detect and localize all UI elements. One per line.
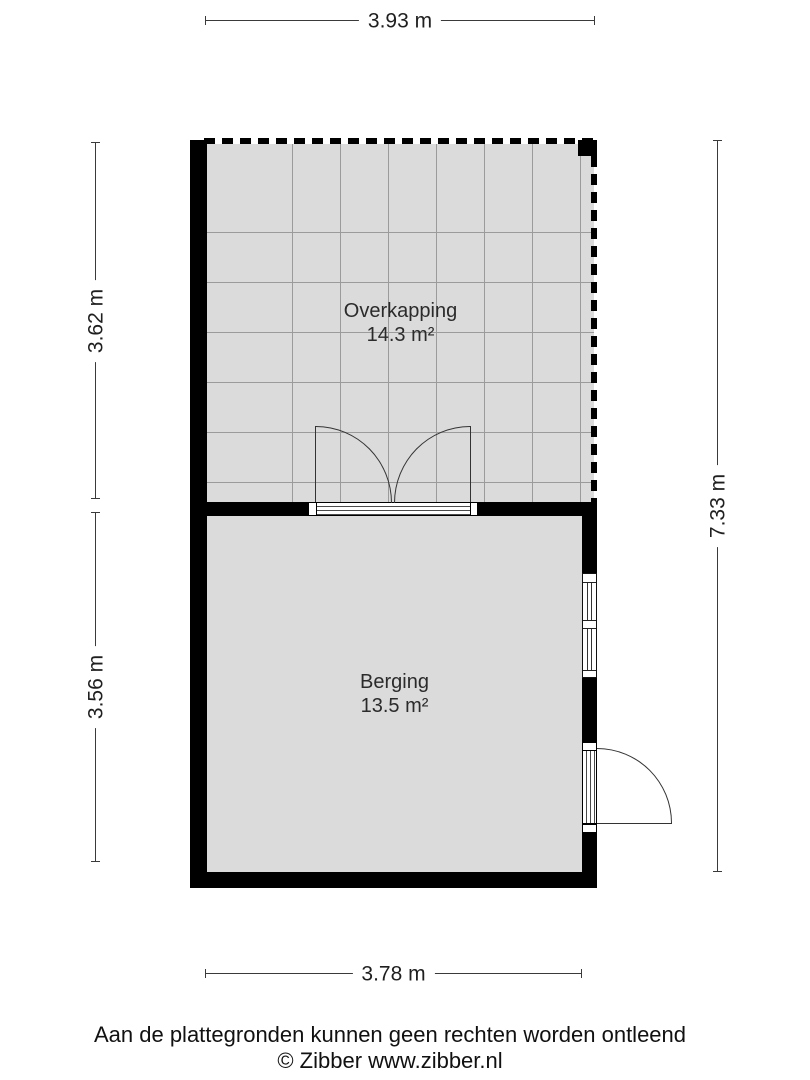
room-berging-label: Berging 13.5 m² — [207, 516, 582, 872]
dimension-top: 3.93 m — [205, 20, 595, 21]
double-door-right-leaf — [470, 426, 471, 502]
dimension-right: 7.33 m — [717, 140, 718, 872]
room-overkapping-name: Overkapping — [344, 300, 457, 322]
window-center-mullion — [583, 620, 596, 629]
dimension-left-upper: 3.62 m — [95, 142, 96, 499]
footer-credit: © Zibber www.zibber.nl — [0, 1048, 780, 1074]
footer: Aan de plattegronden kunnen geen rechten… — [0, 1022, 780, 1074]
window-right-wall — [582, 573, 597, 678]
wall-bottom — [190, 872, 597, 888]
exterior-door-leaf — [597, 823, 672, 824]
room-overkapping-label: Overkapping 14.3 m² — [207, 144, 594, 502]
wall-divider-left — [190, 502, 308, 516]
room-berging-floor: Berging 13.5 m² — [207, 516, 582, 872]
room-overkapping-area: 14.3 m² — [367, 324, 435, 346]
double-door-jamb-right — [470, 502, 478, 516]
double-door-sill — [316, 502, 471, 516]
wall-divider-right — [478, 502, 597, 516]
exterior-door-swing-arc — [597, 748, 672, 823]
window-frame-line — [583, 582, 596, 583]
dimension-right-label: 7.33 m — [706, 465, 729, 547]
wall-right-middle — [582, 678, 597, 742]
dimension-left-lower: 3.56 m — [95, 512, 96, 862]
dimension-bottom-label: 3.78 m — [352, 962, 434, 985]
footer-disclaimer: Aan de plattegronden kunnen geen rechten… — [0, 1022, 780, 1048]
floorplan-canvas: 3.93 m 3.62 m 3.56 m 7.33 m 3.78 m Overk… — [0, 0, 810, 1080]
room-overkapping-floor: Overkapping 14.3 m² — [207, 144, 594, 502]
room-berging-area: 13.5 m² — [361, 695, 429, 717]
dimension-left-upper-label: 3.62 m — [84, 279, 107, 361]
room-berging-name: Berging — [360, 671, 429, 693]
exterior-door-jamb-bottom — [582, 824, 597, 833]
wall-right-lower — [582, 832, 597, 872]
wall-right-upper — [582, 516, 597, 573]
window-frame-line — [583, 670, 596, 671]
exterior-door-threshold — [582, 750, 597, 824]
dimension-top-label: 3.93 m — [359, 9, 441, 32]
dimension-left-lower-label: 3.56 m — [84, 646, 107, 728]
dimension-bottom: 3.78 m — [205, 973, 582, 974]
